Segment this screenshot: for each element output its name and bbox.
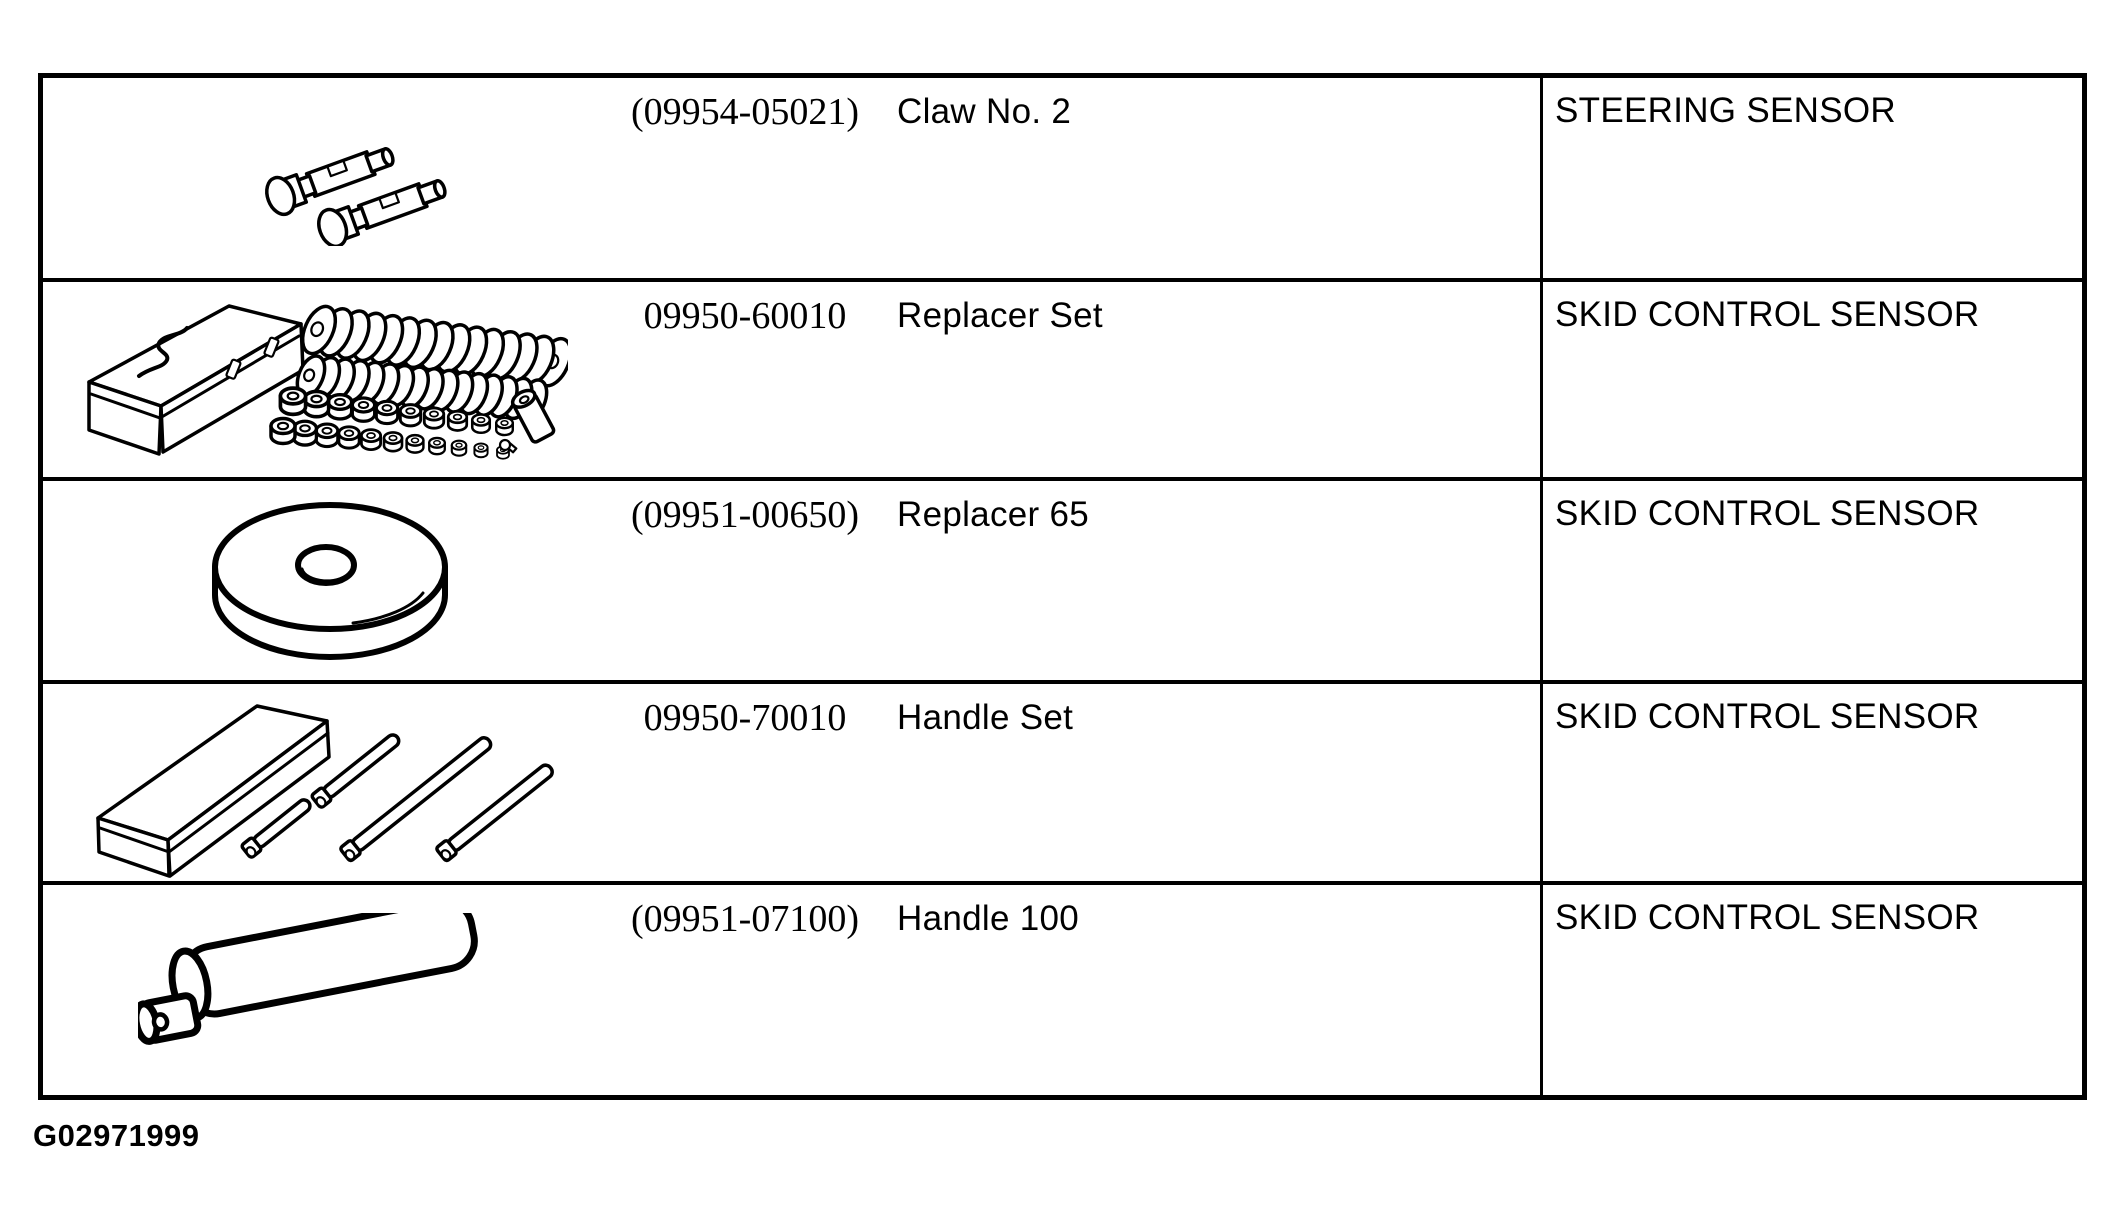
application-cell-row-4: SKID CONTROL SENSOR: [1540, 684, 2082, 885]
claw-no-2-illustration: [253, 136, 473, 246]
part-number: 09950-60010: [585, 294, 905, 338]
figure-code: G02971999: [33, 1118, 200, 1154]
application-label: SKID CONTROL SENSOR: [1555, 295, 1979, 335]
part-number: (09954-05021): [585, 90, 905, 134]
tool-cell-row-3: (09951-00650) Replacer 65: [43, 481, 1540, 684]
application-label: SKID CONTROL SENSOR: [1555, 494, 1979, 534]
page: (09954-05021) Claw No. 2 STEERING SENSOR: [0, 0, 2124, 1221]
replacer-65-illustration: [203, 495, 458, 680]
part-number: 09950-70010: [585, 696, 905, 740]
tool-cell-row-4: 09950-70010 Handle Set: [43, 684, 1540, 885]
part-number: (09951-00650): [585, 493, 905, 537]
replacer-set-illustration: [83, 296, 568, 464]
application-cell-row-5: SKID CONTROL SENSOR: [1540, 885, 2082, 1095]
handle-100-illustration: [138, 913, 498, 1063]
tool-cell-row-1: (09954-05021) Claw No. 2: [43, 78, 1540, 282]
application-cell-row-1: STEERING SENSOR: [1540, 78, 2082, 282]
application-label: SKID CONTROL SENSOR: [1555, 697, 1979, 737]
tool-cell-row-5: (09951-07100) Handle 100: [43, 885, 1540, 1095]
tool-name: Handle Set: [897, 698, 1073, 738]
application-label: SKID CONTROL SENSOR: [1555, 898, 1979, 938]
tool-name: Replacer 65: [897, 495, 1089, 535]
application-cell-row-3: SKID CONTROL SENSOR: [1540, 481, 2082, 684]
handle-set-illustration: [73, 700, 568, 880]
tool-name: Replacer Set: [897, 296, 1103, 336]
tool-cell-row-2: 09950-60010 Replacer Set: [43, 282, 1540, 481]
application-cell-row-2: SKID CONTROL SENSOR: [1540, 282, 2082, 481]
tool-name: Claw No. 2: [897, 92, 1071, 132]
tool-name: Handle 100: [897, 899, 1079, 939]
sst-table: (09954-05021) Claw No. 2 STEERING SENSOR: [38, 73, 2087, 1100]
part-number: (09951-07100): [585, 897, 905, 941]
application-label: STEERING SENSOR: [1555, 91, 1896, 131]
